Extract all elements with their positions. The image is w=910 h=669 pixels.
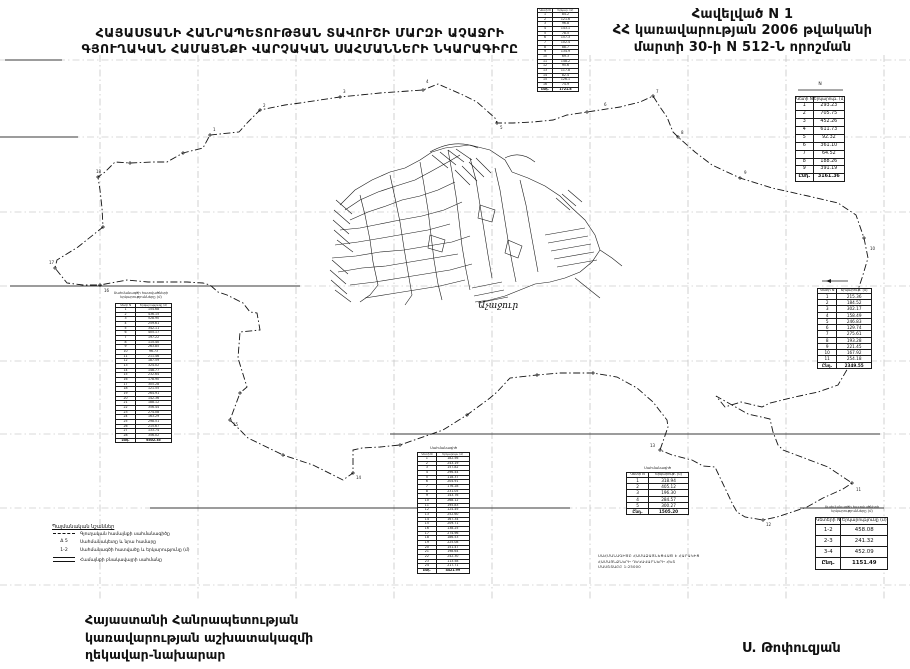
- signatory-position: Հայաստանի Հանրապետությանկառավարության աշ…: [85, 611, 313, 664]
- annex-heading: Հավելված N 1 ՀՀ կառավարության 2006 թվակա…: [575, 7, 910, 56]
- boundary-point-number: 9: [744, 171, 747, 175]
- annex-line1: Հավելված N 1: [575, 7, 910, 23]
- border-length-table-topright: Կետի NԵրկարութ. (մ)1293.232705.753452.26…: [795, 96, 845, 182]
- table-caption-left: Սահմանագծի հատվածներիերկարությունները (մ…: [108, 291, 174, 300]
- border-length-table-centerright: Կետի NԵրկարութ. (մ)1318.942405.123196.30…: [626, 472, 689, 515]
- boundary-point-number: 18: [96, 170, 101, 174]
- table-caption-bottomright: Սահմանագծի հատվածներիերկարությունները (մ…: [812, 505, 892, 514]
- map-legend: Պայմանական նշաններ Գյուղական համայնքի սա…: [52, 524, 242, 567]
- boundary-point-number: 7: [656, 90, 659, 94]
- legend-item-label: Գյուղական համայնքի սահմանագիծը: [80, 532, 170, 537]
- scanned-map-page: 123456789101112131415161718 Աչաջուր Հավե…: [0, 0, 910, 669]
- legend-item-label: Սահմանակետը և նրա համարը: [80, 540, 156, 545]
- border-length-table-bottomright: Կետերի NԵրկարությունը (մ)1-2458.082-3241…: [815, 517, 888, 570]
- boundary-point-number: 2: [263, 104, 266, 108]
- double-line-icon: [52, 557, 76, 565]
- boundary-point-number: 10: [870, 247, 875, 251]
- map-note: ՍԱՀՄԱՆԱԳԻԾԸ ՀԱՄԱՁԱՅՆԵՑՎԱԾ Է ՀԱՐԱԿԻՑՀԱՄԱՅ…: [598, 553, 713, 570]
- annex-line2: ՀՀ կառավարության 2006 թվականի: [575, 23, 910, 39]
- triangle-point-icon: Δ 5: [52, 540, 76, 545]
- border-length-table-right: Կետի NԵրկարութ. (մ)1215.362184.523302.17…: [817, 288, 872, 369]
- page-title: ՀԱՅԱՍՏԱՆԻ ՀԱՆՐԱՊԵՏՈՒԹՅԱՆ ՏԱՎՈՒՇԻ ՄԱՐԶԻ Ա…: [70, 25, 530, 58]
- legend-item-point: Δ 5 Սահմանակետը և նրա համարը: [52, 540, 242, 545]
- border-length-table-center: Կետի NԵրկարութ. (մ)1182.562243.193157.82…: [417, 452, 470, 574]
- boundary-point-number: 11: [856, 488, 861, 492]
- legend-item-segment: 1-2 Սահմանագծի հատվածը և երկարությունը (…: [52, 548, 242, 553]
- table-caption-center: Սահմանագիծ: [417, 446, 470, 450]
- signatory-name: Ս. Թոփուզյան: [742, 641, 841, 656]
- table-caption-topright: N: [795, 82, 845, 88]
- boundary-point-number: 17: [49, 261, 54, 265]
- legend-item-label: Համայնքի բնակավայրի սահմանը: [80, 558, 162, 563]
- boundary-point-number: 8: [681, 131, 684, 135]
- boundary-point-number: 15: [233, 423, 238, 427]
- title-line2: ԳՅՈՒՂԱԿԱՆ ՀԱՄԱՅՆՔԻ ՎԱՐՉԱԿԱՆ ՍԱՀՄԱՆՆԵՐԻ Ն…: [70, 41, 530, 57]
- legend-item-boundary: Գյուղական համայնքի սահմանագիծը: [52, 532, 242, 537]
- dashdot-line-icon: [52, 532, 76, 537]
- boundary-point-number: 1: [213, 128, 216, 132]
- boundary-point-number: 6: [604, 103, 607, 107]
- border-length-table-top: Կետի NԵրկար. (մ)184.22121.6396.84143.157…: [537, 8, 579, 92]
- boundary-point-number: 14: [356, 476, 361, 480]
- border-length-table-left: Կետի NԵրկարությունը (մ)1154.682436.15352…: [115, 303, 172, 443]
- boundary-point-number: 13: [650, 444, 655, 448]
- boundary-point-number: 3: [343, 90, 346, 94]
- legend-item-settlement: Համայնքի բնակավայրի սահմանը: [52, 557, 242, 565]
- table-caption-centerright: Սահմանագիծ: [626, 466, 689, 470]
- annex-line3: մարտի 30-ի N 512-Ն որոշման: [575, 40, 910, 56]
- title-line1: ՀԱՅԱՍՏԱՆԻ ՀԱՆՐԱՊԵՏՈՒԹՅԱՆ ՏԱՎՈՒՇԻ ՄԱՐԶԻ Ա…: [70, 25, 530, 41]
- segment-label-icon: 1-2: [52, 549, 76, 554]
- legend-title: Պայմանական նշաններ: [52, 524, 242, 530]
- boundary-point-number: 5: [500, 126, 503, 130]
- legend-item-label: Սահմանագծի հատվածը և երկարությունը (մ): [80, 548, 190, 553]
- boundary-point-number: 4: [426, 80, 429, 84]
- boundary-point-number: 12: [766, 523, 771, 527]
- settlement-label: Աչաջուր: [478, 301, 518, 311]
